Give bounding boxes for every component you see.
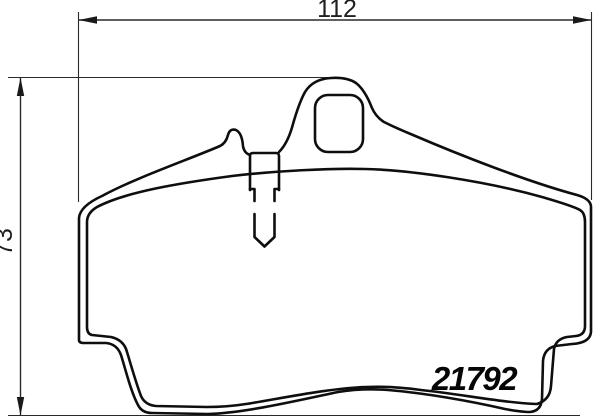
wear-sensor-shaft-tip	[255, 214, 275, 247]
part-number-label: 21792	[431, 360, 518, 397]
height-arrowhead-top	[17, 78, 24, 97]
technical-drawing-canvas: 112 73 21792	[0, 0, 600, 418]
technical-drawing-page: 112 73 21792	[0, 0, 600, 418]
tab-hole	[315, 95, 363, 152]
width-arrowhead-right	[573, 16, 592, 23]
height-arrowhead-bottom	[17, 397, 24, 416]
width-dimension-label: 112	[317, 0, 357, 23]
brake-pad-part: 21792	[79, 78, 591, 414]
wear-sensor-shaft-upper	[250, 189, 279, 201]
wear-sensor-pin	[250, 153, 279, 247]
height-dimension-label: 73	[0, 228, 18, 256]
width-arrowhead-left	[79, 16, 98, 23]
